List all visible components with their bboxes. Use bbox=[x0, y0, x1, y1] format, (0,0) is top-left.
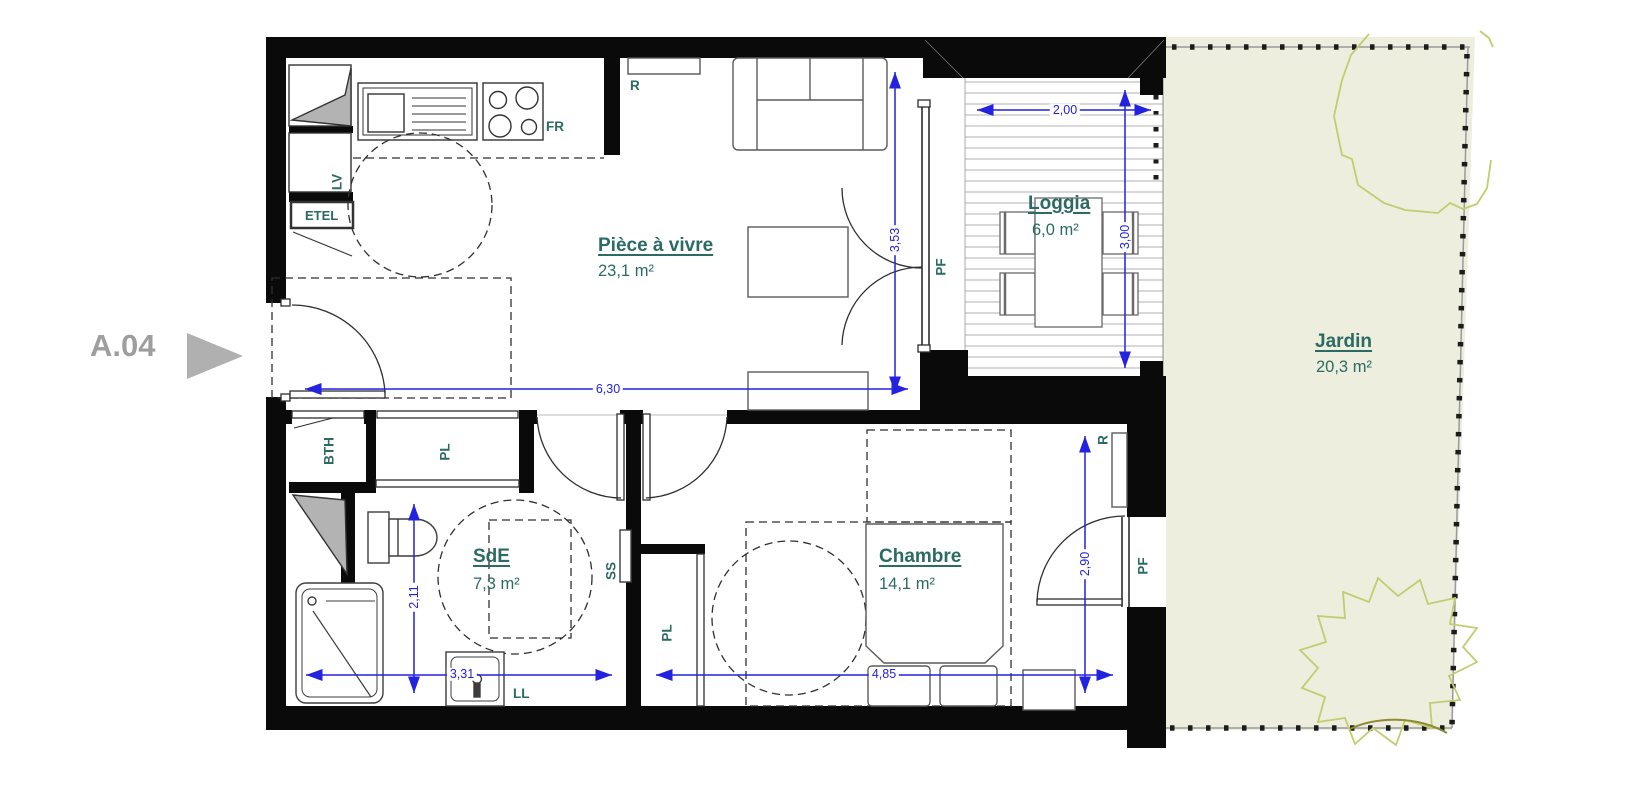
chambre-door-leaf bbox=[643, 414, 650, 500]
armchair-icon bbox=[748, 227, 848, 297]
label-fridge: FR bbox=[546, 120, 564, 134]
turning-circle-kitchen bbox=[348, 133, 492, 277]
dim-chambre-width: 4,85 bbox=[869, 668, 899, 681]
duct-wedge-bottom bbox=[293, 495, 347, 574]
room-title-jardin: Jardin bbox=[1315, 332, 1372, 351]
bed-icon bbox=[866, 524, 1003, 663]
label-etel: ETEL bbox=[305, 209, 338, 222]
walls bbox=[266, 37, 1166, 748]
sde-door-leaf bbox=[617, 414, 624, 500]
entrance-frame-bottom bbox=[281, 394, 290, 401]
sink-icon bbox=[358, 83, 477, 140]
label-washing-machine: LL bbox=[513, 687, 530, 701]
radiator-living bbox=[628, 58, 700, 74]
label-bth: BTH bbox=[322, 437, 336, 465]
label-radiator-chambre: R bbox=[1096, 435, 1110, 445]
nightstand-icon bbox=[1023, 670, 1075, 710]
duct-wedge-top bbox=[292, 68, 351, 126]
stove-icon bbox=[483, 83, 543, 140]
room-area-living: 23,1 m² bbox=[598, 263, 654, 280]
dim-sde-height: 2,11 bbox=[408, 582, 421, 611]
dim-living-height: 3,53 bbox=[889, 225, 902, 255]
towel-radiator-icon bbox=[620, 530, 631, 582]
label-closet-sde: PL bbox=[438, 443, 452, 460]
floor-plan-drawing bbox=[0, 0, 1636, 800]
room-area-jardin: 20,3 m² bbox=[1316, 359, 1372, 376]
toilet-icon bbox=[368, 512, 437, 563]
room-title-sde: SdE bbox=[473, 547, 510, 566]
loggia-furniture bbox=[1000, 198, 1138, 327]
shower-icon bbox=[296, 583, 383, 703]
entrance-frame-top bbox=[281, 299, 290, 306]
dim-loggia-height: 3,00 bbox=[1119, 222, 1132, 252]
bth-closet-front bbox=[292, 411, 364, 418]
label-pf-living: PF bbox=[934, 258, 948, 275]
living-furniture bbox=[733, 58, 887, 410]
pf-chambre-leaf bbox=[1037, 599, 1122, 605]
pf-window-living bbox=[842, 100, 930, 352]
turning-circle-chambre bbox=[712, 541, 866, 695]
label-pf-chambre: PF bbox=[1136, 557, 1150, 574]
sde-door-arc bbox=[537, 417, 621, 498]
pl-sde-closet-front bbox=[377, 411, 518, 418]
sideboard-icon bbox=[748, 372, 868, 410]
radiator-chambre bbox=[1112, 433, 1127, 507]
dim-living-width: 6,30 bbox=[593, 383, 623, 396]
unit-label: A.04 bbox=[90, 330, 155, 361]
dim-loggia-width: 2,00 bbox=[1050, 104, 1080, 117]
room-title-living: Pièce à vivre bbox=[598, 236, 713, 255]
etel-door-line bbox=[293, 232, 352, 256]
unit-pointer-icon bbox=[187, 333, 243, 379]
sofa-icon bbox=[733, 58, 887, 150]
label-towel-radiator: SS bbox=[604, 562, 618, 580]
entrance-door-arc bbox=[292, 305, 385, 393]
garden-area bbox=[1156, 31, 1493, 745]
table-icon bbox=[1035, 198, 1102, 327]
bed-clearance-top bbox=[867, 430, 1011, 522]
dim-sde-width: 3,31 bbox=[447, 668, 477, 681]
floor-plan-canvas: A.04 Pièce à vivre 23,1 m² Loggia 6,0 m²… bbox=[0, 0, 1636, 800]
pl-sde-closet-back bbox=[376, 480, 519, 487]
room-area-chambre: 14,1 m² bbox=[879, 576, 935, 593]
pillow-right bbox=[940, 666, 997, 706]
label-dishwasher: LV bbox=[330, 174, 344, 190]
room-title-chambre: Chambre bbox=[879, 547, 961, 566]
label-closet-chambre: PL bbox=[660, 624, 674, 641]
entrance-door-leaf bbox=[290, 391, 385, 398]
pl-chambre-sliding-door bbox=[697, 554, 704, 706]
dim-chambre-height: 2,90 bbox=[1079, 549, 1092, 579]
room-title-loggia: Loggia bbox=[1028, 194, 1090, 213]
entrance-clearance bbox=[272, 278, 511, 398]
room-area-sde: 7,3 m² bbox=[473, 576, 520, 593]
chambre-door-arc bbox=[646, 417, 727, 498]
room-area-loggia: 6,0 m² bbox=[1032, 222, 1079, 239]
label-radiator-living: R bbox=[630, 79, 640, 93]
